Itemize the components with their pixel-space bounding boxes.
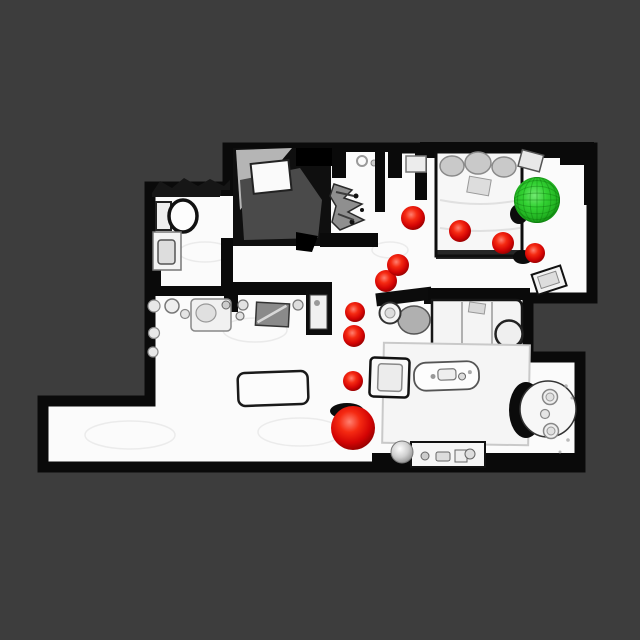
entry-closet bbox=[233, 148, 332, 252]
waypoint-sphere bbox=[492, 232, 514, 254]
office-chair bbox=[398, 306, 430, 334]
wardrobe bbox=[251, 160, 292, 194]
waypoint-sphere bbox=[449, 220, 471, 242]
agent-sphere bbox=[331, 406, 375, 450]
toilet-bowl bbox=[169, 200, 197, 232]
folded-blanket bbox=[467, 176, 491, 196]
scene-viewport[interactable] bbox=[0, 0, 640, 640]
wall bbox=[320, 233, 378, 247]
scene-canvas[interactable] bbox=[0, 0, 640, 640]
side-table bbox=[406, 156, 426, 172]
bathroom-sink-basin bbox=[158, 240, 175, 264]
waypoint-sphere bbox=[343, 371, 363, 391]
side-table-round bbox=[496, 321, 523, 348]
wall bbox=[428, 288, 530, 300]
pillow bbox=[440, 156, 464, 176]
waypoint-sphere bbox=[401, 206, 425, 230]
sofa bbox=[428, 288, 530, 348]
waypoint-sphere bbox=[525, 243, 545, 263]
waypoint-sphere bbox=[343, 325, 365, 347]
wall bbox=[584, 150, 593, 205]
vase-ball bbox=[391, 441, 413, 463]
armchair bbox=[369, 357, 409, 397]
cup bbox=[541, 410, 550, 419]
wall bbox=[375, 148, 385, 212]
waypoint-sphere bbox=[345, 302, 365, 322]
kitchen-table bbox=[237, 371, 308, 406]
pillow bbox=[492, 157, 516, 177]
waypoint-sphere bbox=[387, 254, 409, 276]
coffee-table bbox=[414, 361, 480, 391]
pillow bbox=[465, 152, 491, 174]
